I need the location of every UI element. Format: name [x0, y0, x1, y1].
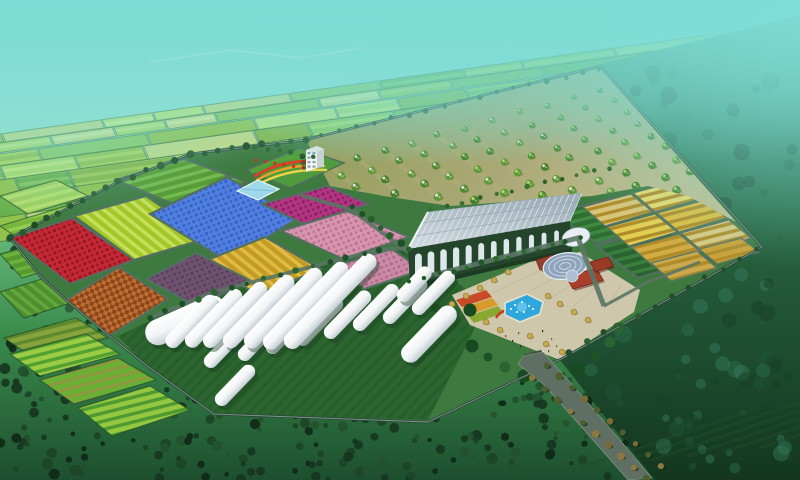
- terrain-mottle: [737, 372, 754, 389]
- orchard-tree: [470, 196, 479, 205]
- terrain-mottle: [715, 356, 730, 371]
- forest-tree: [459, 447, 469, 457]
- roadside-tree: [581, 395, 588, 402]
- tree-blossom: [369, 168, 372, 171]
- roadside-tree: [580, 420, 585, 425]
- roadside-tree: [594, 407, 600, 413]
- aerial-render-image: [0, 0, 800, 480]
- hedge-tree: [245, 282, 249, 286]
- forest-tree: [512, 396, 519, 403]
- roadside-tree: [592, 430, 600, 438]
- hedge-tree: [406, 246, 412, 252]
- hedge-tree: [584, 338, 590, 344]
- forest-tree: [537, 399, 547, 409]
- roadside-tree: [544, 362, 550, 368]
- forest-tree: [389, 423, 399, 433]
- person: [512, 340, 513, 342]
- fountain-jet: [523, 311, 525, 313]
- terrain-mottle: [753, 378, 765, 390]
- terrain-mottle: [709, 343, 720, 354]
- forest-tree: [197, 461, 204, 468]
- forest-tree: [491, 412, 497, 418]
- forest-tree: [131, 438, 135, 442]
- pool-highlight: [517, 302, 527, 312]
- tree-blossom: [382, 176, 385, 179]
- forest-tree: [194, 433, 199, 438]
- forest-tree: [545, 450, 555, 460]
- roadside-tree: [607, 418, 614, 425]
- hedge-tree: [565, 349, 572, 356]
- forest-tree: [498, 401, 503, 406]
- plaza-ornamental-tree: [557, 301, 563, 307]
- hedge-tree: [350, 204, 355, 209]
- forest-tree: [258, 416, 264, 422]
- terrain-mottle: [722, 313, 737, 328]
- plaza-shade-tree: [592, 352, 601, 361]
- forest-tree: [247, 447, 255, 455]
- forest-tree: [225, 452, 230, 457]
- hedge-tree: [578, 235, 582, 239]
- roadside-tree: [529, 375, 535, 381]
- orchard-tree: [445, 172, 453, 180]
- plaza-ornamental-tree: [463, 293, 469, 299]
- hedge-tree: [195, 296, 201, 302]
- hedge-tree: [229, 285, 235, 291]
- terrain-mottle: [772, 360, 783, 371]
- terrain-mottle: [751, 301, 764, 314]
- hedge-tree: [437, 271, 441, 275]
- hedge-tree: [378, 225, 383, 230]
- fountain-jet: [510, 308, 512, 310]
- forest-tree: [154, 451, 162, 459]
- forest-tree: [31, 401, 37, 407]
- forest-tree: [362, 466, 372, 476]
- terrain-mottle: [732, 390, 739, 397]
- roadside-tree: [658, 463, 664, 469]
- hedge-tree: [451, 269, 456, 274]
- tree-blossom: [539, 192, 542, 195]
- forest-tree: [432, 468, 438, 474]
- forest-tree: [212, 441, 222, 451]
- forest-tree: [520, 472, 525, 477]
- forest-tree: [378, 459, 387, 468]
- forest-tree: [487, 453, 498, 464]
- flower-dot: [292, 165, 295, 168]
- hedge-tree: [702, 274, 707, 279]
- plaza-shade-tree: [500, 362, 511, 373]
- forest-tree: [11, 433, 21, 443]
- hedge-tree: [562, 239, 567, 244]
- person: [505, 335, 506, 337]
- forest-tree: [13, 466, 19, 472]
- forest-tree: [310, 421, 319, 430]
- terrain-mottle: [735, 268, 749, 282]
- forest-tree: [414, 434, 420, 440]
- hedge-tree: [422, 276, 426, 280]
- tree-blossom: [471, 197, 474, 200]
- terrain-mottle: [763, 278, 773, 288]
- forest-tree: [81, 454, 88, 461]
- fountain-jet: [514, 304, 516, 306]
- forest-tree: [314, 442, 318, 446]
- forest-tree: [41, 435, 46, 440]
- person: [518, 332, 519, 334]
- terrain-mottle: [729, 463, 740, 474]
- forest-tree: [604, 472, 612, 480]
- terrain-mottle: [585, 363, 598, 376]
- forest-tree: [81, 446, 86, 451]
- tree-blossom: [422, 181, 425, 184]
- forest-tree: [143, 445, 149, 451]
- roadside-tree: [567, 409, 573, 415]
- hedge-tree: [398, 240, 405, 247]
- forest-tree: [371, 433, 379, 441]
- tree-blossom: [338, 173, 341, 176]
- forest-tree: [160, 468, 164, 472]
- forest-tree: [451, 457, 457, 463]
- forest-tree: [581, 440, 587, 446]
- forest-tree: [140, 471, 149, 480]
- hedge-tree: [278, 273, 283, 278]
- orchard-tree: [337, 172, 345, 180]
- forest-tree: [461, 435, 468, 442]
- terrain-mottle: [771, 378, 781, 388]
- hall-dome: [566, 270, 578, 282]
- hedge-tree: [653, 304, 658, 309]
- hedge-tree: [162, 308, 168, 314]
- tree-blossom: [527, 181, 530, 184]
- forest-tree: [484, 444, 491, 451]
- forest-tree: [553, 436, 557, 440]
- haze-patch: [170, 25, 690, 165]
- fountain-jet: [528, 305, 530, 307]
- person: [542, 330, 543, 332]
- roadside-tree: [633, 441, 638, 446]
- plaza-ornamental-tree: [543, 341, 549, 347]
- forest-tree: [164, 387, 169, 392]
- forest-tree: [317, 450, 324, 457]
- terrain-mottle: [711, 376, 720, 385]
- orchard-tree: [434, 192, 443, 201]
- plaza-shade-tree: [484, 353, 493, 362]
- forest-tree: [508, 442, 514, 448]
- forest-tree: [501, 433, 509, 441]
- roadside-tree: [569, 385, 575, 391]
- hedge-tree: [550, 242, 555, 247]
- terrain-mottle: [696, 379, 706, 389]
- hedge-tree: [506, 256, 510, 260]
- hedge-tree: [465, 266, 469, 270]
- tree-blossom: [409, 171, 412, 174]
- forest-tree: [94, 432, 101, 439]
- forest-tree: [184, 437, 192, 445]
- tree-blossom: [485, 178, 488, 181]
- forest-tree: [292, 468, 298, 474]
- orchard-tree: [407, 170, 415, 178]
- terrain-mottle: [783, 372, 792, 381]
- plaza-shade-tree: [605, 337, 616, 348]
- tree-blossom: [461, 186, 464, 189]
- forest-tree: [547, 440, 557, 450]
- hedge-tree: [600, 329, 606, 335]
- forest-tree: [309, 461, 316, 468]
- person: [530, 350, 531, 352]
- forest-tree: [42, 458, 53, 469]
- terrain-mottle: [752, 327, 759, 334]
- forest-tree: [17, 444, 23, 450]
- hedge-tree: [31, 222, 38, 229]
- forest-tree: [428, 438, 432, 442]
- hedge-tree: [619, 323, 624, 328]
- forest-tree: [256, 467, 265, 476]
- hedge-tree: [179, 301, 185, 307]
- hedge-tree: [386, 232, 393, 239]
- tree-blossom: [553, 176, 556, 179]
- forest-tree: [323, 423, 328, 428]
- forest-tree: [407, 472, 415, 480]
- plaza-ornamental-tree: [491, 277, 497, 283]
- hedge-tree: [536, 249, 540, 253]
- terrain-mottle: [681, 354, 691, 364]
- hedge-tree: [292, 267, 298, 273]
- roadside-tree: [631, 464, 637, 470]
- forest-tree: [258, 428, 262, 432]
- terrain-mottle: [756, 363, 770, 377]
- hedge-tree: [147, 315, 153, 321]
- orchard-tree: [390, 189, 398, 197]
- forest-tree: [293, 423, 299, 429]
- forest-tree: [247, 468, 255, 476]
- hedge-tree: [19, 229, 26, 236]
- hedge-tree: [210, 289, 215, 294]
- forest-tree: [538, 413, 549, 424]
- hedge-tree: [721, 267, 725, 271]
- orchard-tree: [514, 169, 522, 177]
- orchard-tree: [484, 177, 492, 185]
- person: [520, 345, 521, 347]
- forest-tree: [71, 432, 76, 437]
- fountain-jet: [521, 301, 523, 303]
- forest-tree: [305, 427, 313, 435]
- hedge-tree: [635, 313, 641, 319]
- orchard-tree: [381, 175, 389, 183]
- plaza-ornamental-tree: [571, 309, 577, 315]
- forest-tree: [224, 472, 229, 477]
- hedge-tree: [669, 293, 674, 298]
- roadside-tree: [617, 453, 624, 460]
- hedge-tree: [261, 276, 266, 281]
- plaza-ornamental-tree: [585, 317, 591, 323]
- person: [551, 338, 552, 340]
- terrain-mottle: [718, 288, 733, 303]
- hedge-tree: [311, 264, 315, 268]
- fountain-jet: [516, 311, 518, 313]
- terrain-mottle: [616, 399, 624, 407]
- plaza-ornamental-tree: [559, 349, 565, 355]
- plaza-ornamental-tree: [483, 319, 489, 325]
- forest-tree: [100, 441, 105, 446]
- terrain-mottle: [681, 323, 694, 336]
- hedge-tree: [445, 204, 449, 208]
- forest-tree: [160, 443, 170, 453]
- forest-tree: [176, 458, 186, 468]
- forest-tree: [49, 469, 60, 480]
- plaza-ornamental-tree: [505, 269, 511, 275]
- forest-tree: [47, 448, 57, 458]
- forest-tree: [542, 424, 548, 430]
- forest-tree: [300, 418, 310, 428]
- forest-tree: [354, 441, 363, 450]
- forest-tree: [316, 460, 322, 466]
- hedge-tree: [359, 211, 365, 217]
- forest-tree: [473, 438, 479, 444]
- orchard-tree: [420, 179, 428, 187]
- tree-blossom: [515, 170, 518, 173]
- roadside-tree: [554, 396, 562, 404]
- forest-tree: [70, 465, 81, 476]
- plaza-shade-tree: [453, 329, 464, 340]
- terrain-mottle: [674, 373, 682, 381]
- roadside-tree: [555, 373, 563, 381]
- forest-tree: [66, 457, 72, 463]
- plaza-shade-tree: [464, 304, 477, 317]
- hedge-tree: [328, 259, 333, 264]
- orchard-tree: [351, 183, 359, 191]
- hedge-tree: [7, 234, 14, 241]
- forest-tree: [24, 393, 28, 397]
- terrain-mottle: [605, 384, 622, 401]
- forest-tree: [338, 421, 348, 431]
- hedge-tree: [524, 184, 529, 189]
- orchard-tree: [460, 185, 468, 193]
- terrain-mottle: [705, 455, 714, 464]
- hedge-tree: [522, 249, 527, 254]
- hedge-tree: [493, 256, 499, 262]
- tree-blossom: [435, 194, 438, 197]
- forest-tree: [21, 425, 27, 431]
- hedge-tree: [478, 259, 484, 265]
- tree-blossom: [475, 166, 478, 169]
- fountain-jet: [532, 308, 534, 310]
- forest-tree: [562, 420, 569, 427]
- forest-tree: [455, 468, 462, 475]
- hedge-tree: [362, 251, 367, 256]
- tree-blossom: [501, 190, 504, 193]
- hedge-tree: [510, 190, 514, 194]
- terrain-mottle: [656, 394, 667, 405]
- forest-tree: [29, 408, 39, 418]
- forest-tree: [569, 461, 573, 465]
- farm-aerial-scene: [0, 0, 800, 480]
- hedge-tree: [368, 216, 375, 223]
- plaza-ornamental-tree: [527, 333, 533, 339]
- forest-tree: [554, 431, 558, 435]
- plaza-shade-tree: [572, 364, 585, 377]
- greenhouse-arch-window: [440, 249, 446, 272]
- plaza-ornamental-tree: [545, 293, 551, 299]
- person: [548, 350, 549, 352]
- forest-tree: [63, 415, 69, 421]
- forest-tree: [1, 379, 9, 387]
- plaza-shade-tree: [466, 340, 479, 353]
- plaza-ornamental-tree: [477, 285, 483, 291]
- hedge-tree: [686, 285, 691, 290]
- orchard-tree: [474, 165, 482, 173]
- roadside-tree: [645, 452, 651, 458]
- roadside-tree: [605, 441, 612, 448]
- forest-tree: [402, 462, 411, 471]
- forest-tree: [436, 445, 445, 454]
- orchard-tree: [500, 189, 508, 197]
- roadside-tree: [620, 429, 626, 435]
- hedge-tree: [495, 192, 499, 196]
- forest-tree: [241, 462, 246, 467]
- plaza-ornamental-tree: [497, 327, 503, 333]
- forest-tree: [394, 468, 401, 475]
- forest-tree: [583, 434, 588, 439]
- forest-tree: [509, 459, 515, 465]
- forest-tree: [39, 397, 44, 402]
- hedge-tree: [543, 180, 547, 184]
- hedge-tree: [428, 207, 433, 212]
- forest-tree: [343, 452, 353, 462]
- hedge-tree: [407, 279, 411, 283]
- forest-tree: [206, 415, 215, 424]
- forest-tree: [510, 447, 520, 457]
- forest-tree: [470, 454, 475, 459]
- forest-tree: [296, 442, 304, 450]
- terrain-mottle: [689, 463, 696, 470]
- terrain-mottle: [662, 414, 669, 421]
- forest-tree: [13, 378, 20, 385]
- tree-blossom: [446, 173, 449, 176]
- terrain-mottle: [693, 299, 708, 314]
- hedge-tree: [478, 195, 483, 200]
- hedge-tree: [342, 254, 348, 260]
- person: [556, 345, 557, 347]
- forest-tree: [18, 366, 28, 376]
- forest-tree: [47, 418, 51, 422]
- orchard-tree: [368, 166, 376, 174]
- forest-tree: [578, 455, 587, 464]
- tower-window: [313, 166, 316, 168]
- hedge-tree: [460, 201, 465, 206]
- tree-blossom: [392, 190, 395, 193]
- roadside-tree: [542, 386, 548, 392]
- hedge-tree: [376, 247, 382, 253]
- tower-window: [308, 166, 311, 168]
- tree-blossom: [353, 184, 356, 187]
